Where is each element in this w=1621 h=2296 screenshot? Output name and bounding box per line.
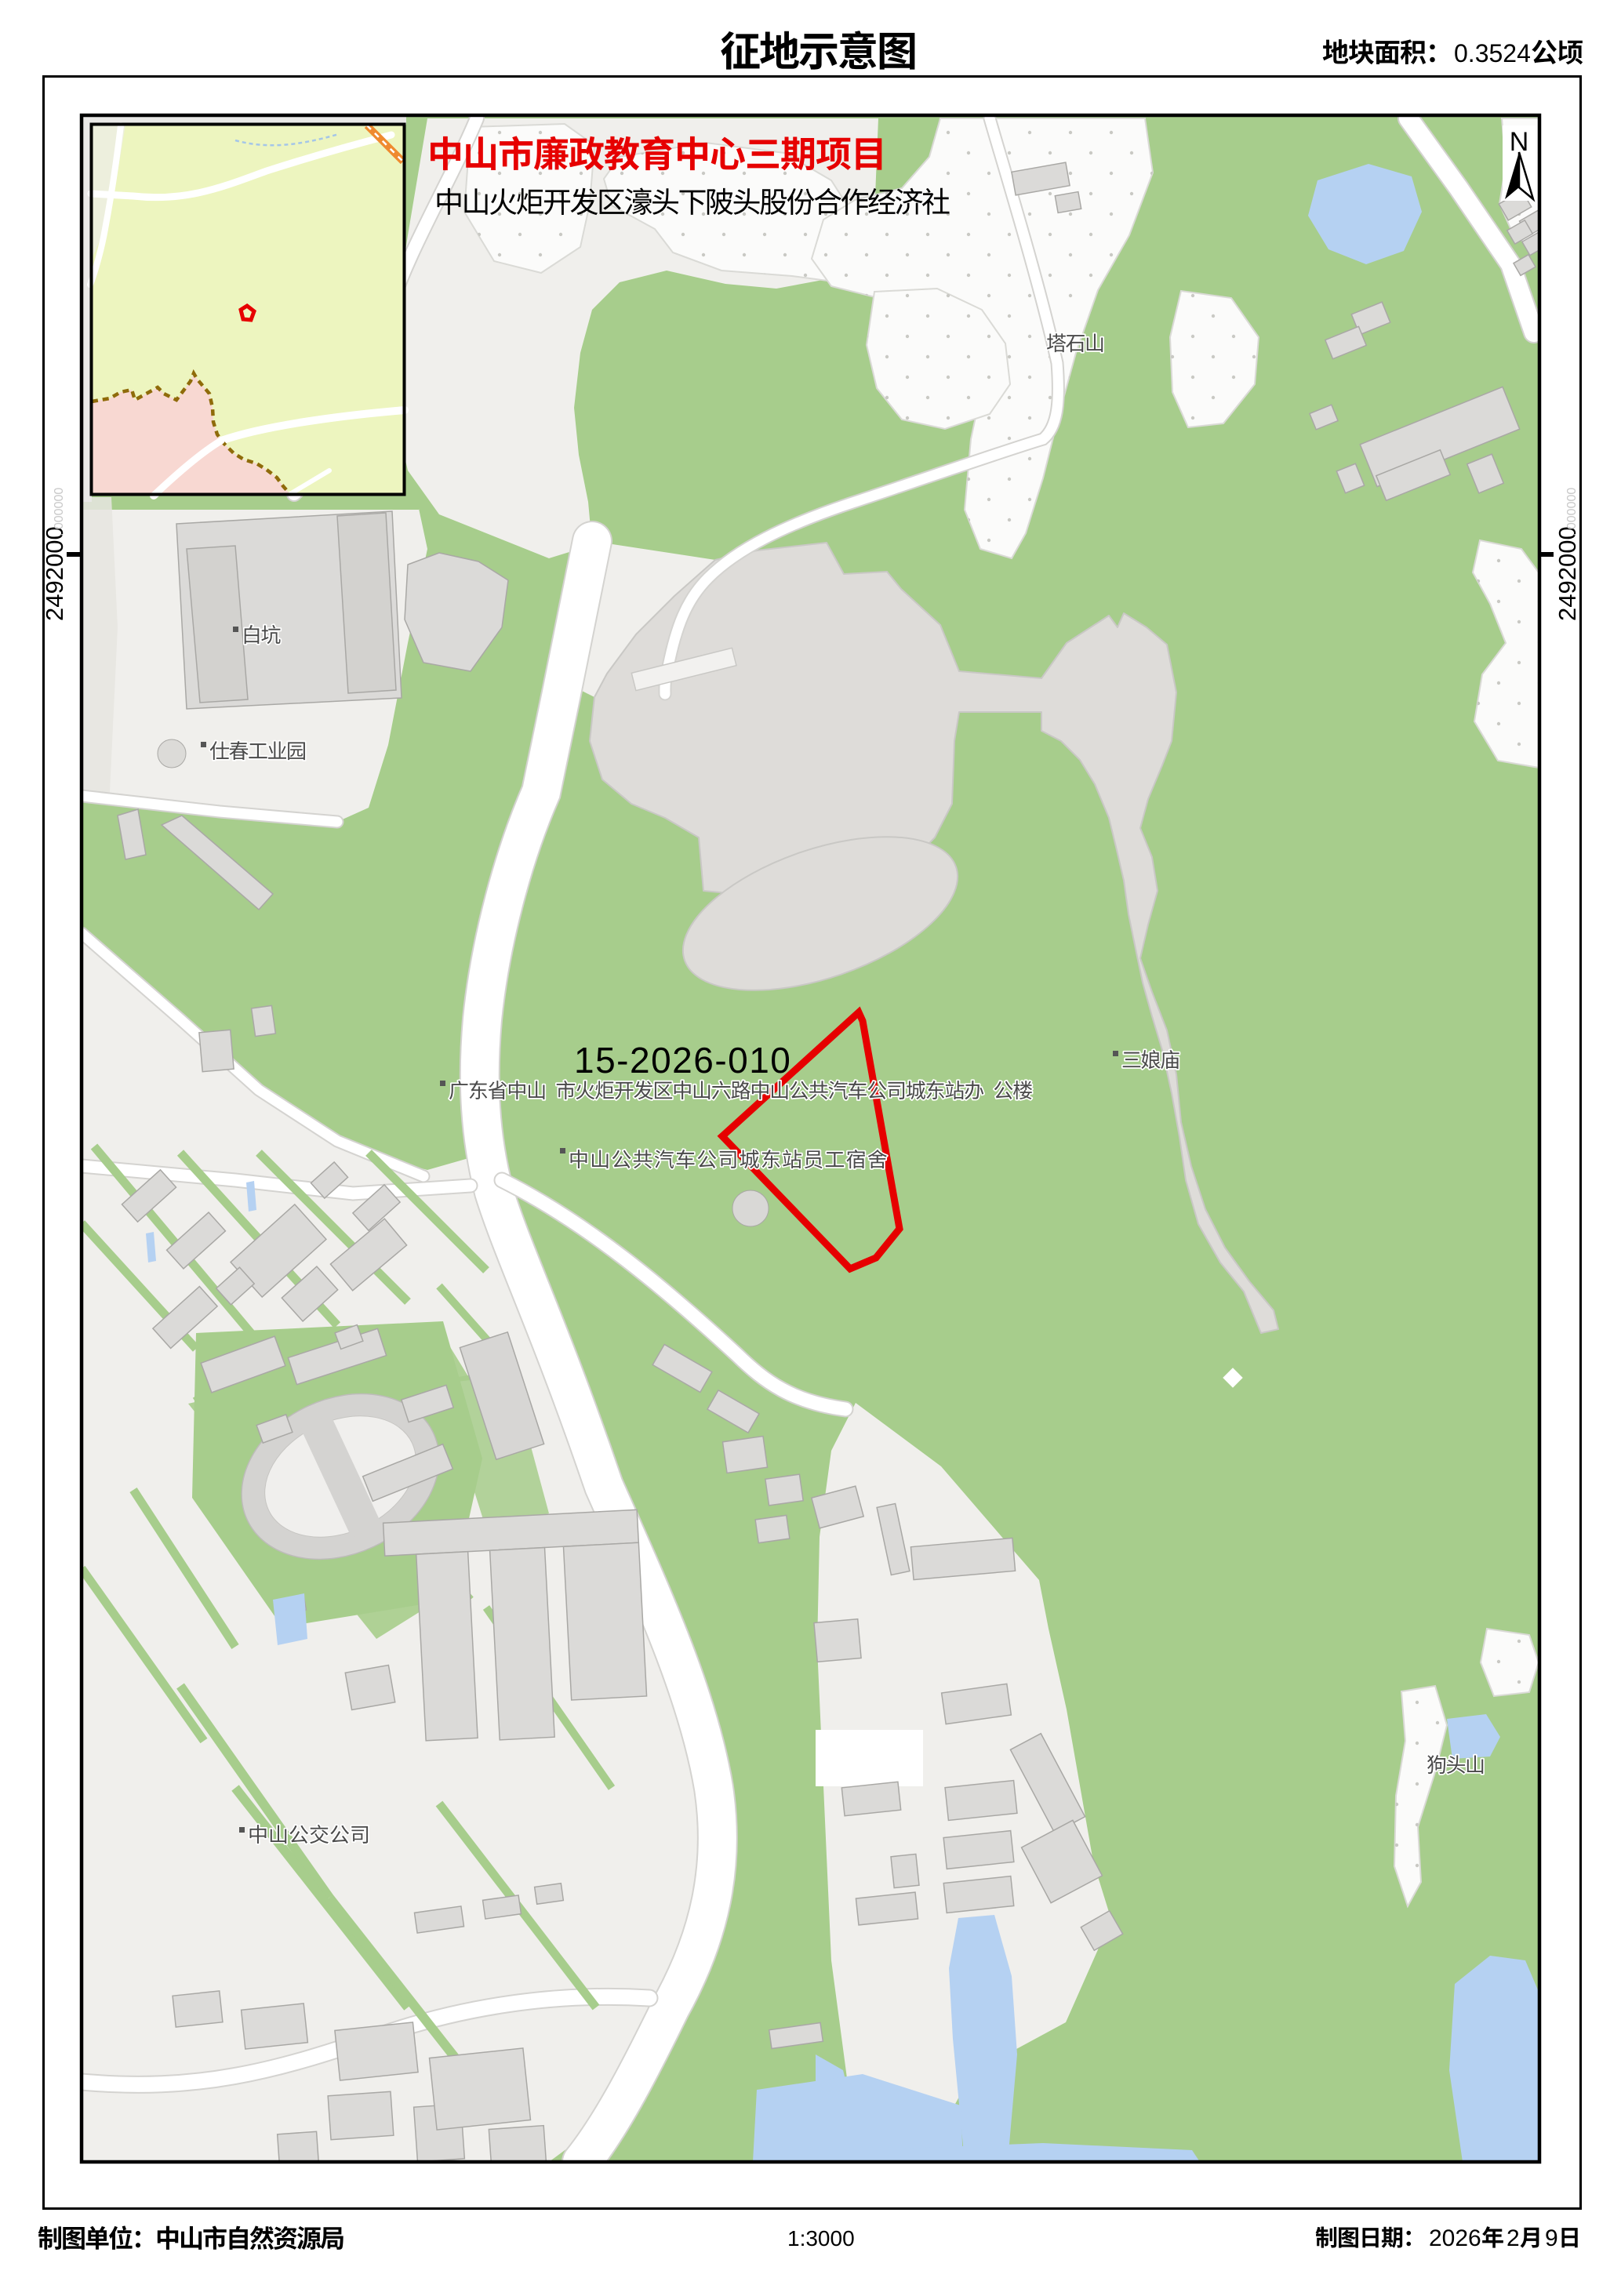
svg-text:0.3524: 0.3524 (1454, 39, 1531, 67)
svg-text:. 000000: . 000000 (53, 488, 66, 536)
svg-text:. 000000: . 000000 (1565, 488, 1579, 536)
svg-text:2: 2 (1507, 2225, 1520, 2251)
svg-text:1:3000: 1:3000 (787, 2226, 855, 2251)
svg-text:2026: 2026 (1429, 2225, 1481, 2251)
svg-text:2492000: 2492000 (1554, 526, 1581, 621)
svg-text:9: 9 (1545, 2225, 1558, 2251)
svg-text:2492000: 2492000 (41, 526, 68, 621)
svg-text:15-2026-010: 15-2026-010 (574, 1040, 791, 1081)
